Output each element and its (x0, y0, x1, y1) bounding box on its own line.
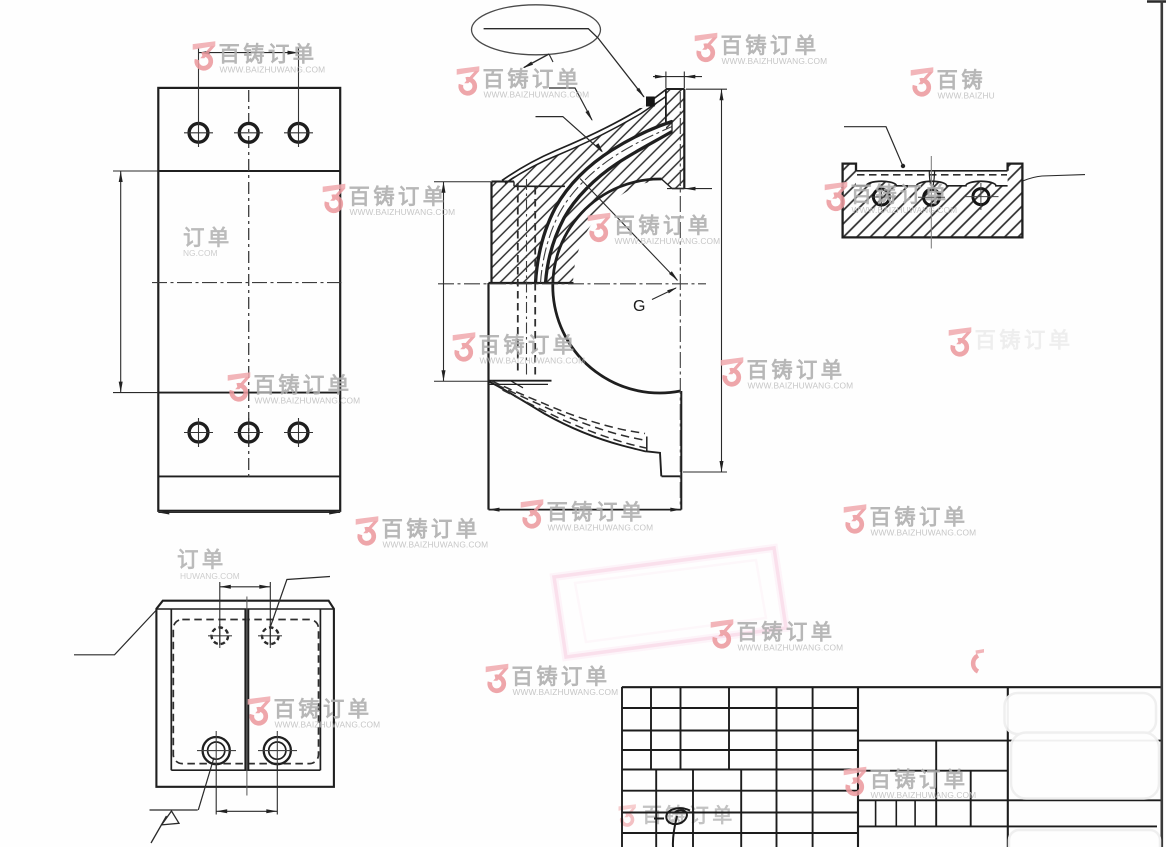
svg-text:WWW.BAIZHU: WWW.BAIZHU (938, 91, 995, 101)
svg-text:HUWANG.COM: HUWANG.COM (180, 571, 240, 581)
svg-text:订单: 订单 (183, 226, 232, 250)
svg-text:G: G (633, 298, 645, 315)
svg-text:订单: 订单 (177, 548, 226, 572)
svg-text:百铸: 百铸 (937, 68, 986, 93)
svg-text:NG.COM: NG.COM (183, 248, 217, 258)
svg-text:百铸订单: 百铸订单 (975, 328, 1074, 353)
